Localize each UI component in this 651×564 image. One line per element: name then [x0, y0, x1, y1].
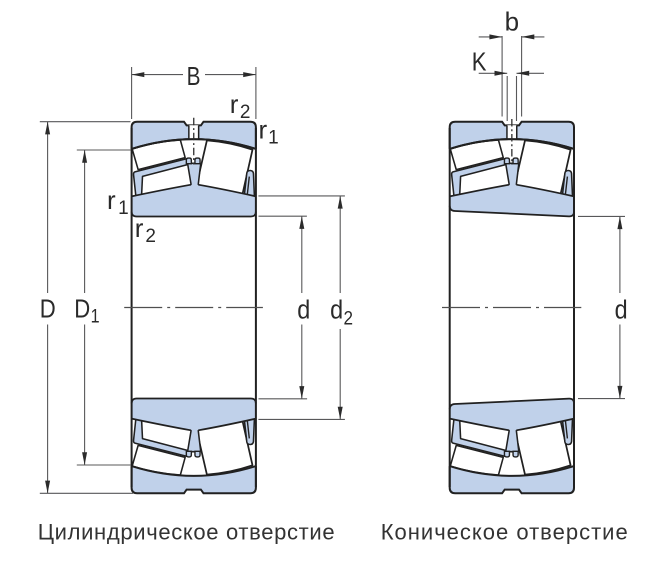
svg-text:d: d — [297, 296, 310, 324]
svg-text:r1: r1 — [107, 185, 129, 219]
svg-text:Цилиндрическое отверстие: Цилиндрическое отверстие — [38, 520, 336, 545]
svg-text:r2: r2 — [230, 89, 251, 123]
svg-text:D1: D1 — [74, 295, 99, 327]
svg-text:K: K — [472, 48, 487, 77]
svg-text:r2: r2 — [135, 213, 156, 247]
svg-text:d2: d2 — [330, 296, 353, 328]
svg-text:d: d — [615, 296, 628, 324]
svg-text:Коническое отверстие: Коническое отверстие — [381, 520, 629, 545]
svg-text:B: B — [187, 62, 201, 91]
svg-text:r1: r1 — [259, 114, 279, 148]
svg-text:D: D — [40, 295, 56, 324]
svg-text:b: b — [505, 6, 519, 36]
